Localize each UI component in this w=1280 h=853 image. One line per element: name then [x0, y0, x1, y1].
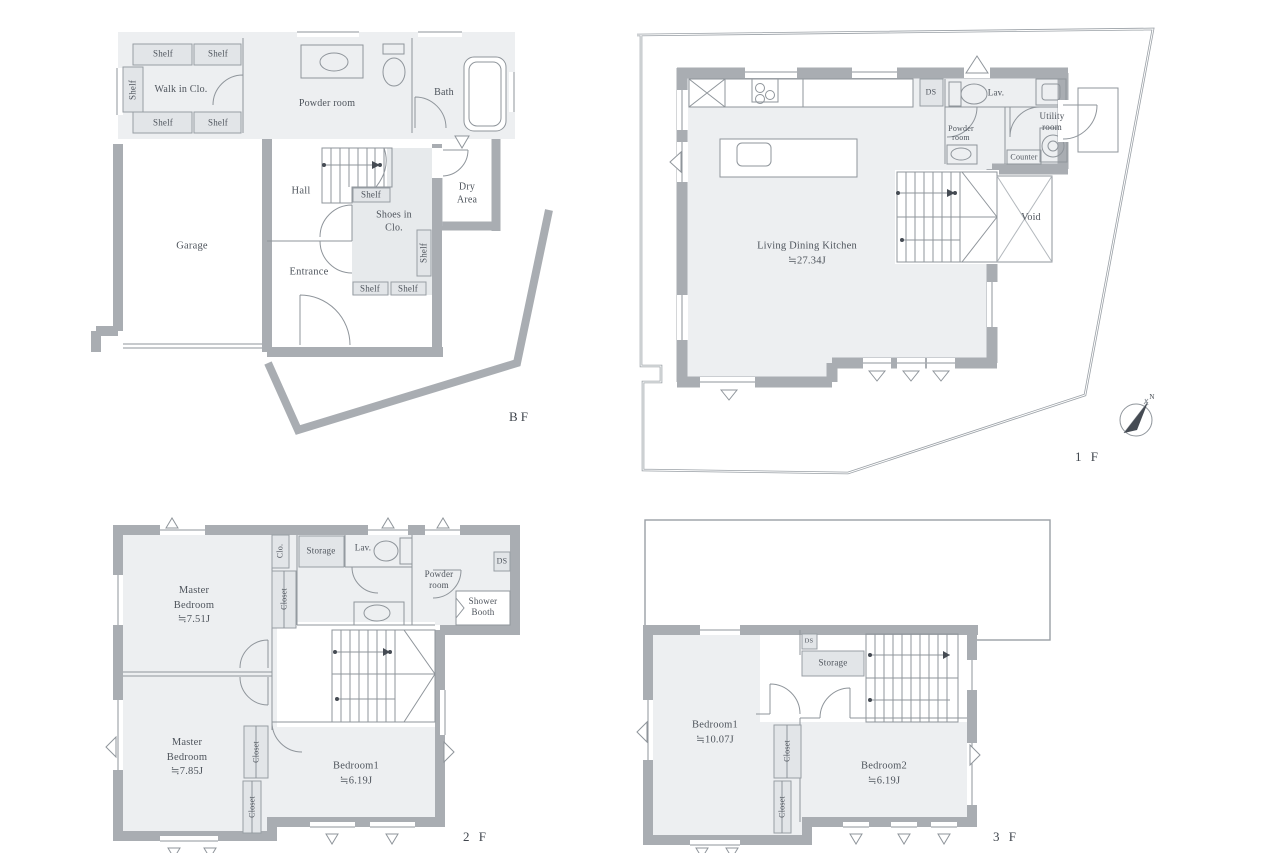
- bf-shelf-label: Shelf: [361, 190, 381, 201]
- f1-ds-label: DS: [926, 87, 937, 96]
- f3-bedroom1-label: Bedroom1 ≒10.07J: [692, 718, 738, 747]
- f2-closet-label: Closet: [279, 588, 288, 610]
- f2-floor-label: 2 F: [463, 828, 489, 846]
- f1-void-label: Void: [1021, 212, 1041, 225]
- f3-floor-label: 3 F: [993, 828, 1019, 846]
- bf-shelf-label: Shelf: [153, 49, 173, 60]
- bf-shelf-label: Shelf: [360, 284, 380, 295]
- f3-plan: [637, 520, 1050, 853]
- bf-floor-label: BF: [509, 408, 531, 426]
- bf-hall-label: Hall: [292, 185, 311, 200]
- f3-bedroom2-label: Bedroom2 ≒6.19J: [861, 759, 907, 788]
- bf-shelf-label: Shelf: [208, 118, 228, 129]
- floorplan-drawing: [0, 0, 1280, 853]
- bf-entrance-label: Entrance: [290, 266, 329, 281]
- bf-walkin-label: Walk in Clo.: [155, 84, 208, 97]
- bf-shelf-label: Shelf: [419, 243, 430, 263]
- f2-powder-label: Powder room: [425, 569, 454, 591]
- f1-powder-label: Powder room: [948, 124, 974, 142]
- f2-master2-label: Master Bedroom ≒7.85J: [167, 736, 207, 780]
- floorplan-page: Shelf Shelf Shelf Shelf Shelf Walk in Cl…: [0, 0, 1280, 853]
- f1-utility-label: Utility room: [1040, 111, 1065, 133]
- f1-counter-label: Counter: [1010, 152, 1037, 161]
- bf-bath-label: Bath: [434, 87, 454, 100]
- bf-dry-area-label: Dry Area: [457, 182, 477, 207]
- f2-closet-label: Closet: [251, 741, 260, 763]
- f1-plan: [637, 29, 1153, 473]
- f3-ds-label: DS: [805, 637, 814, 644]
- f2-bedroom1-label: Bedroom1 ≒6.19J: [333, 759, 379, 788]
- bf-shelf-label: Shelf: [208, 49, 228, 60]
- f1-lav-label: Lav.: [988, 88, 1004, 99]
- bf-garage-label: Garage: [176, 240, 208, 255]
- f3-roof-outline: [645, 520, 1050, 640]
- f3-storage-label: Storage: [819, 658, 848, 669]
- bf-powder-label: Powder room: [299, 98, 355, 111]
- f1-ldk-label: Living Dining Kitchen ≒27.34J: [757, 239, 857, 268]
- bf-shelf-label: Shelf: [128, 80, 139, 100]
- f2-clo-label: Clo.: [275, 544, 284, 558]
- f2-shower-label: Shower Booth: [469, 596, 498, 618]
- f1-floor-label: 1 F: [1075, 448, 1101, 466]
- bf-shoes-label: Shoes in Clo.: [376, 210, 412, 235]
- bf-shelf-label: Shelf: [398, 284, 418, 295]
- f3-closet-label: Closet: [782, 740, 791, 762]
- bf-bathtub: [464, 57, 506, 131]
- compass-north-label: N: [1149, 393, 1154, 403]
- f2-lav-label: Lav.: [355, 543, 371, 554]
- f2-ds-label: DS: [497, 556, 508, 565]
- f2-plan: [106, 518, 520, 853]
- bf-shelf-label: Shelf: [153, 118, 173, 129]
- f1-stairs: [895, 170, 999, 264]
- f2-master1-label: Master Bedroom ≒7.51J: [174, 584, 214, 628]
- f2-storage-label: Storage: [307, 546, 336, 557]
- compass-icon: [1120, 399, 1152, 436]
- f2-closet-label: Closet: [247, 796, 256, 818]
- f3-closet-label: Closet: [777, 796, 786, 818]
